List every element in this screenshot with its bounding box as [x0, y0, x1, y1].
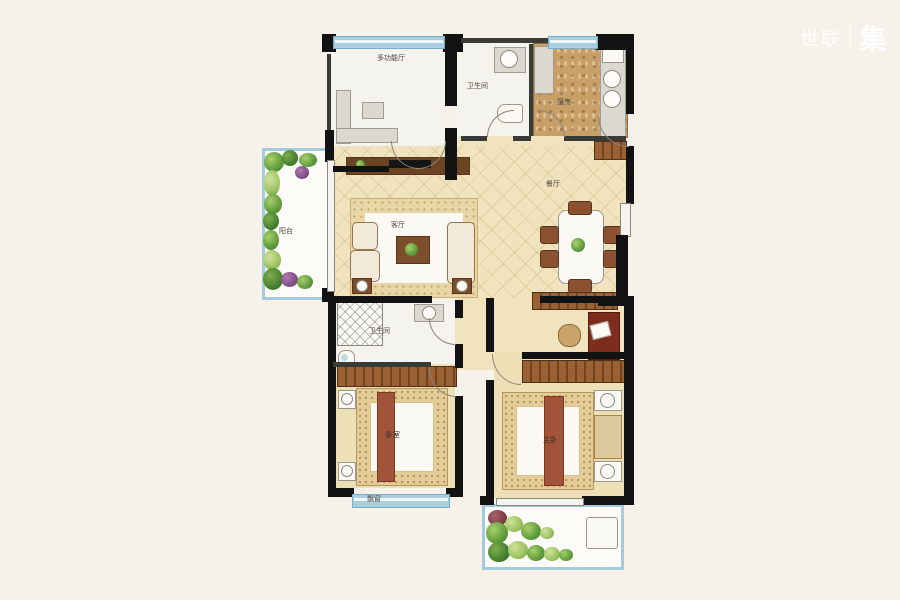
dining-chair: [568, 201, 592, 215]
wall: [455, 344, 463, 368]
plant: [297, 275, 313, 289]
wall: [624, 300, 634, 352]
wall: [486, 380, 494, 502]
plant: [264, 152, 284, 172]
plant: [559, 549, 573, 561]
wall: [624, 352, 634, 502]
bed-left: [356, 388, 448, 486]
wall: [328, 300, 336, 490]
plant: [264, 170, 280, 196]
wall: [443, 34, 463, 52]
brand-watermark: 世联 集: [800, 18, 886, 57]
multi-room-table: [362, 102, 384, 119]
kitchen-stove: [603, 90, 621, 108]
wall: [522, 352, 626, 359]
washing-machine: [586, 517, 618, 549]
window-glass: [550, 40, 596, 43]
room-label-bedroom-left: 卧室: [386, 432, 400, 439]
armchair: [352, 222, 378, 250]
room-label-bay-window: 飘窗: [367, 496, 381, 503]
wall: [486, 298, 494, 352]
plant: [263, 230, 279, 250]
wall: [461, 38, 552, 43]
plant: [521, 522, 541, 540]
wardrobe: [522, 360, 626, 383]
window: [548, 36, 598, 49]
dining-chair: [540, 226, 559, 244]
wall: [455, 396, 463, 490]
room-label-balcony-left: 阳台: [279, 228, 293, 235]
wall: [325, 130, 334, 162]
plant: [263, 250, 281, 270]
plant: [263, 268, 283, 290]
wall: [626, 48, 634, 114]
wall: [480, 496, 494, 505]
plant: [544, 547, 560, 561]
wall: [529, 44, 533, 136]
kitchen-sink: [603, 70, 621, 88]
nightstand-lamp: [341, 465, 353, 477]
wall: [445, 52, 457, 106]
table-plant: [405, 243, 418, 256]
wall: [333, 166, 389, 172]
window-glass: [335, 40, 443, 43]
plant: [540, 527, 554, 539]
nightstand-lamp: [341, 393, 353, 405]
wall: [327, 54, 331, 130]
balcony-sliding-door: [327, 160, 335, 292]
plant: [295, 166, 309, 179]
brand-name: 世联: [800, 24, 842, 51]
wall: [626, 146, 634, 204]
brand-divider: [850, 23, 851, 53]
plant: [508, 541, 528, 559]
dresser: [594, 415, 622, 459]
wall: [333, 296, 432, 303]
bath-top-sink: [500, 50, 518, 68]
plant: [264, 194, 282, 214]
room-label-kitchen: 厨房: [557, 99, 571, 106]
shower: [337, 302, 383, 346]
wall: [582, 496, 634, 505]
dining-chair: [540, 250, 559, 268]
nightstand-lamp: [600, 393, 615, 408]
room-label-dining: 餐厅: [546, 181, 560, 188]
room-label-multi: 多功能厅: [377, 55, 405, 62]
plant: [282, 150, 298, 166]
room-label-bath-top: 卫生间: [467, 83, 488, 90]
plant: [281, 272, 298, 287]
balcony-sliding-door: [496, 498, 584, 506]
wall: [445, 128, 457, 180]
wall: [461, 136, 487, 141]
floor-plan-canvas: 世联 集: [0, 0, 900, 600]
room-label-bath-mid: 卫生间: [369, 328, 390, 335]
wall: [616, 235, 628, 298]
toilet-seat: [341, 354, 348, 361]
window: [333, 36, 445, 49]
wall: [540, 296, 600, 303]
plant: [263, 212, 279, 230]
plant: [299, 153, 317, 167]
desk-chair: [558, 324, 581, 347]
lamp: [456, 280, 468, 292]
multi-room-desk: [336, 128, 398, 143]
lamp: [356, 280, 368, 292]
room-label-bedroom-right: 主卧: [543, 437, 557, 444]
wall: [333, 362, 431, 367]
kitchen-fridge: [534, 46, 554, 94]
plant: [488, 542, 510, 562]
centerpiece-plant: [571, 238, 585, 252]
kitchen-appliance: [602, 48, 624, 63]
wall: [513, 136, 531, 141]
wall-window: [620, 203, 631, 237]
brand-suffix: 集: [859, 18, 886, 57]
wall: [328, 488, 354, 497]
plant: [527, 545, 545, 561]
nightstand-lamp: [600, 464, 615, 479]
room-label-living: 客厅: [391, 222, 405, 229]
wall: [455, 300, 463, 318]
sofa: [447, 222, 475, 284]
dining-chair: [568, 279, 592, 293]
